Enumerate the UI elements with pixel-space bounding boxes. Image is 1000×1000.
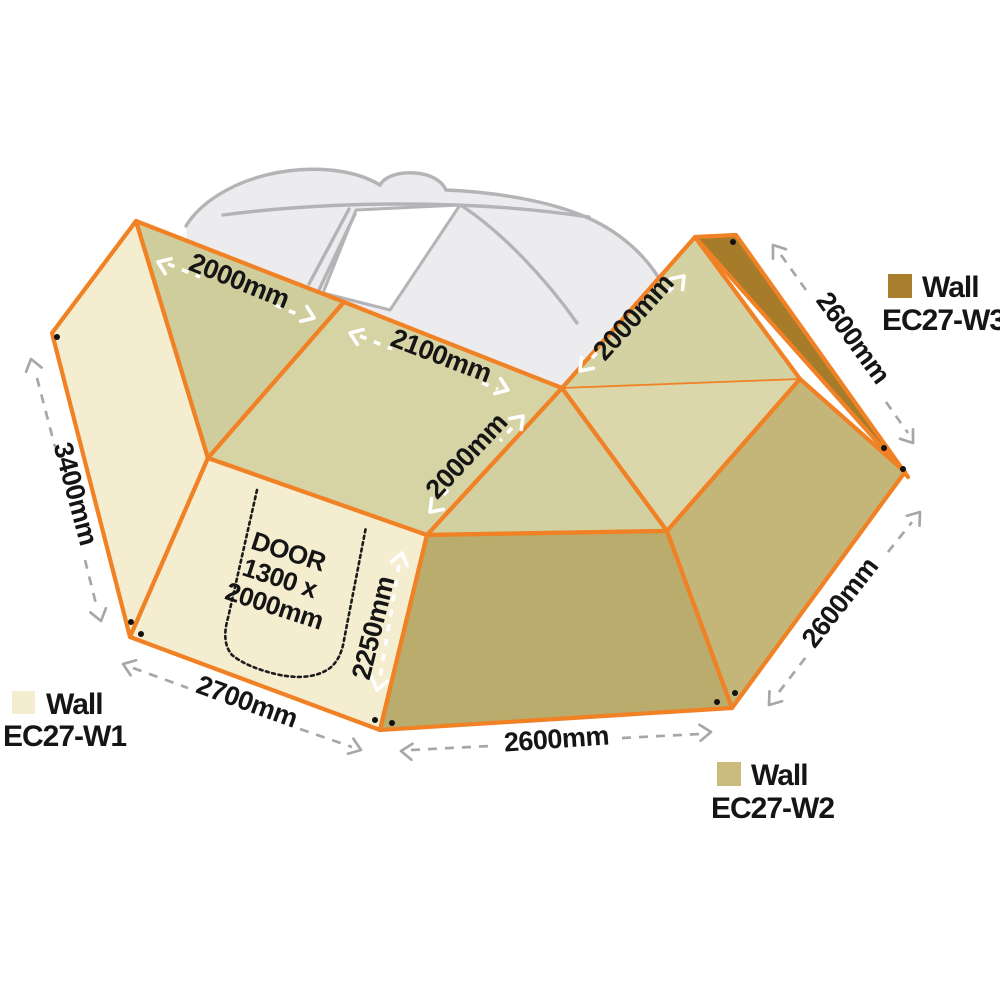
tie-down-dot (714, 699, 720, 705)
legend-swatch-w3 (888, 274, 912, 298)
dimension-dash (85, 560, 97, 608)
tie-down-dot (900, 466, 906, 472)
arrow-chevron-icon (763, 691, 782, 710)
diagram-canvas: DOOR 1300 x 2000mm (0, 0, 1000, 1000)
dimension-dash (411, 746, 490, 750)
dimension-dash (37, 378, 55, 447)
legend-w3-name: Wall (922, 271, 979, 304)
dimension-dash (300, 729, 352, 747)
tie-down-dot (881, 445, 887, 451)
legend-w2-name: Wall (751, 759, 808, 792)
legend-w1: Wall EC27-W1 (3, 688, 126, 753)
legend-swatch-w1 (12, 691, 35, 714)
tie-down-dot (138, 631, 144, 637)
arrow-chevron-icon (348, 739, 364, 758)
dimension-dash (622, 734, 700, 738)
dimension-dash (133, 668, 188, 688)
arrow-chevron-icon (400, 743, 412, 760)
legend-w3: Wall EC27-W3 (882, 271, 1000, 337)
awning-wall-dimension-diagram: DOOR 1300 x 2000mm (0, 0, 1000, 1000)
dimension-dash (888, 522, 912, 552)
dimension-dash (886, 402, 908, 433)
dimension-dash (779, 657, 806, 692)
legend-w1-code: EC27-W1 (3, 720, 126, 753)
arrow-chevron-icon (699, 724, 711, 741)
arrow-chevron-icon (90, 608, 108, 623)
legend-w1-name: Wall (46, 688, 103, 721)
legend-w2-code: EC27-W2 (711, 792, 834, 825)
dim-label-wall2-bottom: 2600mm (503, 720, 610, 757)
arrow-chevron-icon (23, 357, 41, 372)
tie-down-dot (732, 690, 738, 696)
legend-swatch-w2 (717, 762, 741, 786)
tie-down-dot (730, 239, 736, 245)
tie-down-dot (54, 334, 60, 340)
legend-w3-code: EC27-W3 (882, 304, 1000, 337)
tie-down-dot (389, 720, 395, 726)
tie-down-dot (128, 619, 134, 625)
dimension-dash (781, 255, 806, 290)
arrow-chevron-icon (120, 656, 136, 675)
arrow-chevron-icon (900, 429, 919, 447)
legend-w2: Wall EC27-W2 (711, 759, 834, 825)
tie-down-dot (372, 717, 378, 723)
